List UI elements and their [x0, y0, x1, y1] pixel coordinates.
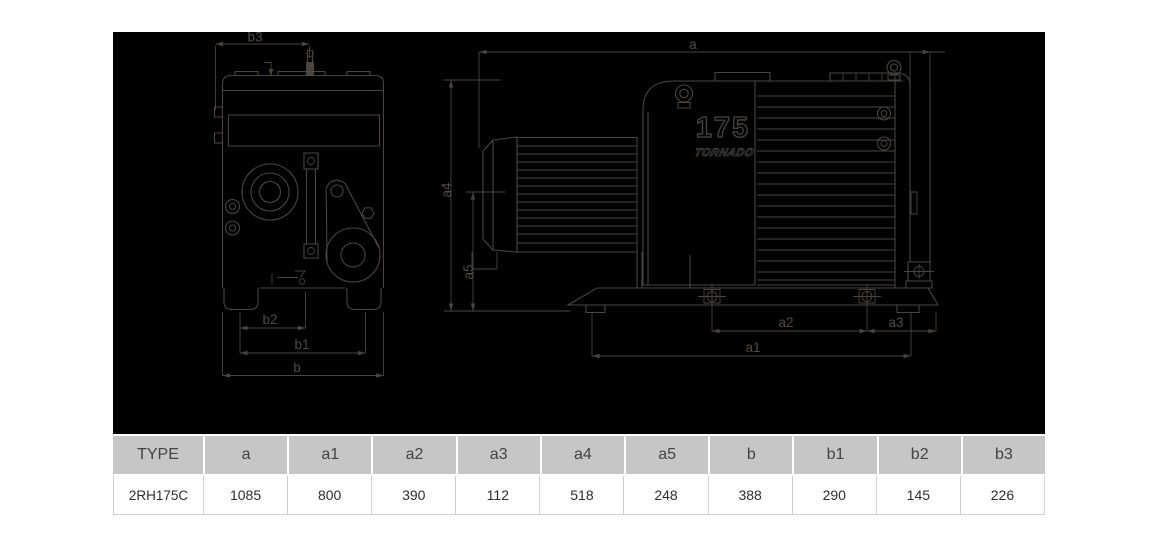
cell-a: 1085	[204, 476, 288, 514]
table-row: 2RH175C 1085 800 390 112 518 248 388 290…	[113, 476, 1045, 515]
model-number-text: 175	[696, 112, 750, 144]
cell-a2: 390	[372, 476, 456, 514]
pump-housing	[643, 81, 903, 285]
cell-a5: 248	[624, 476, 708, 514]
cell-b3: 226	[961, 476, 1045, 514]
dimension-table: TYPE a a1 a2 a3 a4 a5 b b1 b2 b3 2RH175C…	[113, 436, 1045, 515]
cell-b2: 145	[877, 476, 961, 514]
cell-type: 2RH175C	[114, 476, 204, 514]
dim-label-a4: a4	[439, 182, 454, 198]
col-header-a2: a2	[373, 436, 455, 474]
dim-label-a2: a2	[778, 315, 793, 330]
motor-ribs	[517, 146, 637, 243]
col-header-a1: a1	[289, 436, 371, 474]
motor-fan-cover	[483, 137, 517, 252]
dim-label-b3: b3	[247, 32, 262, 45]
cell-a4: 518	[540, 476, 624, 514]
cell-b: 388	[709, 476, 793, 514]
dim-label-a5: a5	[461, 264, 476, 279]
brand-mark-text: TORNADO	[693, 147, 755, 159]
technical-drawing-panel: b3 b2 b1 b	[113, 32, 1045, 434]
front-nameplate	[229, 115, 380, 146]
base-plate	[568, 284, 938, 313]
rear-bracket	[904, 85, 934, 288]
front-view	[215, 50, 384, 310]
dim-label-a3: a3	[888, 315, 903, 330]
col-header-b1: b1	[794, 436, 876, 474]
side-view-dimensions: a a4 a5 a2 a3 a1	[439, 37, 945, 358]
dim-label-b2: b2	[262, 312, 277, 327]
col-header-type: TYPE	[113, 436, 203, 474]
front-view-dimensions: b3 b2 b1 b	[216, 32, 384, 378]
hex-bolt	[362, 208, 374, 218]
dimension-table-header: TYPE a a1 a2 a3 a4 a5 b b1 b2 b3	[113, 436, 1045, 474]
dim-label-a: a	[689, 37, 697, 52]
front-body-outline	[223, 76, 384, 289]
col-header-b3: b3	[963, 436, 1045, 474]
front-foot-right	[347, 288, 381, 310]
rear-fins	[757, 96, 895, 280]
col-header-b: b	[710, 436, 792, 474]
cell-a3: 112	[456, 476, 540, 514]
motor-body	[517, 138, 637, 253]
col-header-a4: a4	[542, 436, 624, 474]
dim-label-a1: a1	[745, 340, 760, 355]
front-left-tabs	[215, 107, 223, 143]
dim-label-b1: b1	[294, 337, 309, 352]
eyebolt-rear	[887, 61, 901, 75]
cell-b1: 290	[793, 476, 877, 514]
eyebolt-front	[676, 85, 693, 102]
col-header-b2: b2	[879, 436, 961, 474]
pump-dimension-figure: b3 b2 b1 b	[0, 0, 1160, 550]
gas-ballast-handle	[304, 153, 318, 258]
side-view: 175 TORNADO	[472, 61, 938, 313]
drain-cock	[272, 271, 305, 285]
col-header-a5: a5	[626, 436, 708, 474]
col-header-a3: a3	[458, 436, 540, 474]
dim-label-b: b	[293, 360, 301, 375]
top-handle	[715, 73, 770, 82]
lever-assembly	[326, 180, 380, 282]
front-foot-left	[224, 288, 258, 310]
pump-drawing-svg: b3 b2 b1 b	[113, 32, 1045, 434]
front-top-tabs	[235, 72, 370, 76]
sight-glass	[242, 164, 298, 220]
cell-a1: 800	[288, 476, 372, 514]
col-header-a: a	[205, 436, 287, 474]
